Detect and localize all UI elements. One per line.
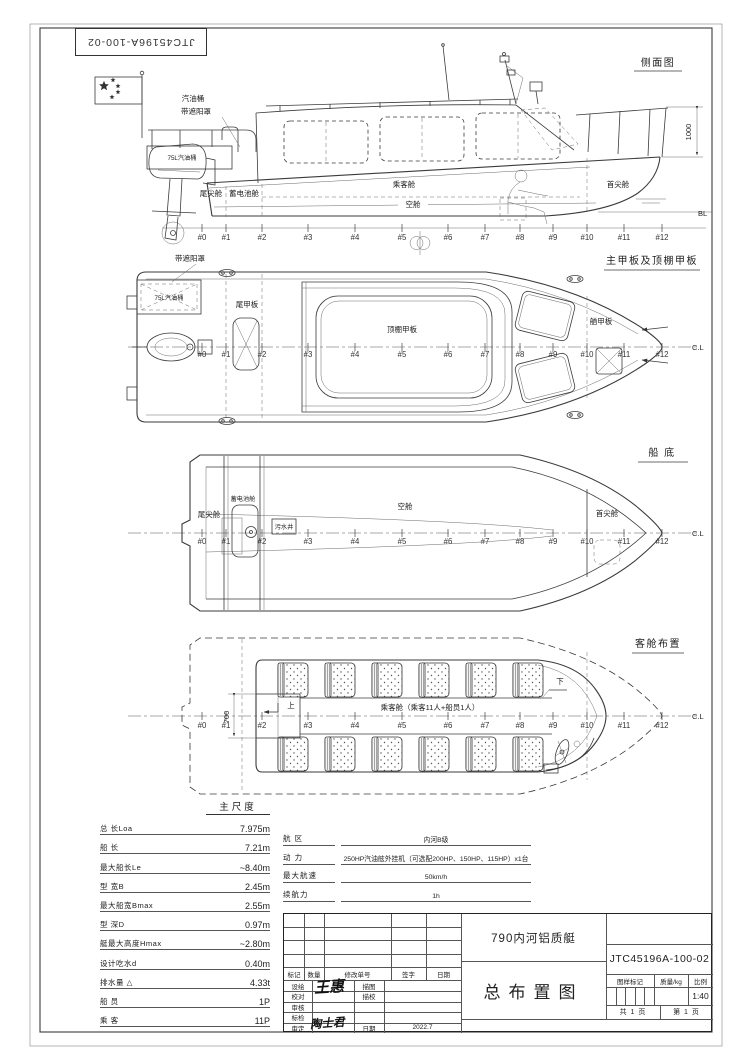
- pages-total: 共 1 页: [606, 1005, 660, 1019]
- station-label: #3: [304, 233, 313, 242]
- deck-fuel-tank-label: 75L汽油桶: [155, 294, 184, 302]
- doc-number-box: JTC45196A-100-02: [75, 28, 207, 56]
- station-label: #8: [516, 721, 525, 730]
- dimension-row: 最大船长Le~8.40m: [100, 854, 270, 873]
- date-label: 日期: [354, 1023, 384, 1034]
- station-label: #2: [258, 537, 267, 546]
- row-label: 船 员: [100, 996, 119, 1007]
- fuel-callout-label: 汽油桶: [182, 93, 205, 103]
- row-value: 50km/h: [341, 874, 531, 883]
- spec-row: 航 区内河B级: [283, 833, 531, 846]
- fuel-tank-75l-label: 75L汽油桶: [168, 154, 197, 162]
- signature-approver: 陶士君: [309, 1014, 345, 1032]
- side-station-row: #0#1#2#3#4#5#6#7#8#9#10#11#12: [198, 224, 669, 242]
- bottom-battery-label: 蓄电池舱: [231, 495, 257, 503]
- battery-label: 蓄电池舱: [229, 188, 259, 198]
- dimension-row: 型 宽B2.45m: [100, 874, 270, 893]
- station-label: #12: [655, 537, 668, 546]
- door-width-text: 700: [222, 711, 231, 724]
- passenger-cabin-label: 乘客舱: [393, 179, 416, 189]
- date-value: 2022.7: [384, 1023, 461, 1034]
- windshield-plan: [514, 290, 576, 404]
- row-value: 7.21m: [245, 843, 270, 853]
- cabin-view: 客舱布置 C.L #0#1#2#3#4#5#6#7#8#9#10#11#12 乘…: [128, 637, 704, 794]
- station-label: #5: [398, 721, 407, 730]
- station-label: #6: [444, 350, 453, 359]
- spec-row: 动 力250HP汽油舷外挂机（可选配200HP、150HP、115HP）x1台: [283, 852, 531, 865]
- deck-view-title: 主甲板及顶棚甲板: [606, 254, 698, 267]
- row-value: 1P: [259, 997, 270, 1007]
- cabin-station-row: #0#1#2#3#4#5#6#7#8#9#10#11#12: [198, 712, 669, 730]
- mast-and-lights: [442, 44, 542, 104]
- principal-dimensions-table: 总 长Loa7.975m船 长7.21m最大船长Le~8.40m型 宽B2.45…: [100, 816, 270, 1027]
- bottom-aft-peak-label: 尾尖舱: [198, 509, 221, 519]
- row-label: 最大船宽Bmax: [100, 900, 153, 911]
- bottom-view-title: 船 底: [648, 446, 675, 459]
- deck-centerline-label: C.L: [692, 343, 704, 352]
- row-label: 设计吃水d: [100, 958, 137, 969]
- flag-star-icon: [116, 83, 121, 88]
- scale-label: 比例: [688, 974, 713, 987]
- side-view-title: 侧面图: [641, 56, 676, 69]
- station-label: #2: [258, 721, 267, 730]
- mass-label: 质量/kg: [654, 974, 688, 987]
- flag-star-icon: [111, 77, 116, 82]
- roof-deck-label: 顶棚甲板: [387, 324, 417, 334]
- flag-star-icon: [110, 94, 115, 99]
- station-label: #10: [580, 233, 594, 242]
- flag: [95, 71, 144, 138]
- station-label: #1: [222, 537, 231, 546]
- station-label: #5: [398, 537, 407, 546]
- station-label: #0: [198, 350, 207, 359]
- row-value: 4.33t: [250, 978, 270, 988]
- height-dimension: 1000: [662, 107, 703, 157]
- role-design: 设绘: [284, 980, 312, 991]
- dimension-row: 设计吃水d0.40m: [100, 950, 270, 969]
- side-view: 侧面图 #0#1#2#3#4#5#6#7#8#9#10#11#12: [95, 44, 712, 255]
- station-label: #7: [481, 350, 490, 359]
- station-label: #3: [304, 350, 313, 359]
- fore-peak-label: 首尖舱: [607, 179, 630, 189]
- row-value: 2.55m: [245, 901, 270, 911]
- aft-peak-label: 尾尖舱: [200, 188, 223, 198]
- bottom-station-row: #0#1#2#3#4#5#6#7#8#9#10#11#12: [198, 529, 669, 546]
- void-label: 空舱: [406, 199, 421, 209]
- dimension-row: 艇最大高度Hmax~2.80m: [100, 931, 270, 950]
- seats-top-row: [278, 663, 543, 697]
- row-value: 0.97m: [245, 920, 270, 930]
- station-label: #2: [258, 233, 267, 242]
- fuel-tank-side: 75L汽油桶: [147, 146, 232, 169]
- drawing-title: 总布置图: [461, 961, 606, 1019]
- page-number: 第 1 页: [660, 1005, 713, 1019]
- rev-header-sign: 签字: [391, 967, 426, 980]
- bilge-well: 污水井: [272, 519, 296, 534]
- product-name: 790内河铝质艇: [461, 914, 606, 961]
- bottom-view: 船 底 C.L #0#1#2#3#4#5#6#7#8#9#10#11#12 蓄电…: [128, 446, 704, 611]
- spec-row: 续航力1h: [283, 889, 531, 902]
- forepeak-hatch-bottom: [594, 540, 620, 564]
- trace-draw: 描图: [354, 980, 384, 991]
- station-label: #10: [580, 721, 594, 730]
- station-label: #11: [618, 350, 630, 359]
- role-standard-check: 标检: [284, 1012, 312, 1023]
- row-value: 250HP汽油舷外挂机（可选配200HP、150HP、115HP）x1台: [341, 853, 531, 865]
- station-label: #12: [655, 721, 668, 730]
- seats-bottom-row: [278, 737, 543, 771]
- aft-deck-label: 尾甲板: [236, 299, 259, 309]
- passenger-note-label: 乘客舱（乘客11人+船员1人）: [381, 702, 480, 712]
- row-label: 最大船长Le: [100, 862, 141, 873]
- row-value: 1h: [341, 893, 531, 902]
- row-label: 续航力: [283, 889, 335, 902]
- station-label: #0: [198, 721, 207, 730]
- row-value: 2.45m: [245, 882, 270, 892]
- station-label: #7: [481, 721, 490, 730]
- station-label: #9: [549, 537, 558, 546]
- station-label: #6: [444, 233, 453, 242]
- row-label: 乘 客: [100, 1015, 119, 1026]
- bottom-centerline-label: C.L: [692, 529, 704, 538]
- row-value: 7.975m: [240, 824, 270, 834]
- signature-designer: 王惠: [313, 975, 344, 998]
- dimension-row: 总 长Loa7.975m: [100, 816, 270, 835]
- station-label: #8: [516, 233, 525, 242]
- drawing-sheet: 侧面图 #0#1#2#3#4#5#6#7#8#9#10#11#12: [0, 0, 750, 1060]
- bow-railing: [576, 108, 668, 157]
- dimension-row: 船 员1P: [100, 989, 270, 1008]
- row-label: 排水量 △: [100, 977, 133, 988]
- station-label: #4: [351, 721, 360, 730]
- doc-number-rotated: JTC45196A-100-02: [87, 36, 195, 48]
- bottom-void-label: 空舱: [398, 501, 413, 511]
- row-value: ~8.40m: [240, 863, 270, 873]
- station-label: #8: [516, 537, 525, 546]
- station-label: #4: [351, 350, 360, 359]
- down-label: 下: [556, 677, 564, 686]
- row-label: 动 力: [283, 852, 335, 865]
- row-label: 航 区: [283, 833, 335, 846]
- row-label: 艇最大高度Hmax: [100, 938, 162, 949]
- station-label: #3: [304, 721, 313, 730]
- spec-row: 最大航速50km/h: [283, 870, 531, 883]
- steering-console: [544, 738, 594, 773]
- battery-compartment-bottom: 蓄电池舱: [222, 495, 258, 557]
- row-label: 型 深D: [100, 919, 125, 930]
- dimension-row: 最大船宽Bmax2.55m: [100, 893, 270, 912]
- flag-star-icon: [99, 81, 109, 90]
- bilge-well-label: 污水井: [275, 523, 294, 531]
- deck-view: 主甲板及顶棚甲板 C.L #0#1#2#3#4#5#6#7#8#9#10#11#…: [127, 253, 704, 425]
- row-value: ~2.80m: [240, 939, 270, 949]
- station-label: #6: [444, 537, 453, 546]
- deck-sunshade-label: 带遮阳罩: [175, 253, 205, 263]
- row-value: 0.40m: [245, 959, 270, 969]
- station-label: #5: [398, 350, 407, 359]
- fore-deck-label: 艏甲板: [590, 316, 613, 326]
- midship-symbol: [410, 231, 430, 255]
- sunshade-callout-label: 带遮阳罩: [181, 106, 211, 116]
- station-label: #1: [222, 233, 231, 242]
- cabin-centerline-label: C.L: [692, 712, 704, 721]
- height-dim-text: 1000: [684, 124, 693, 141]
- station-label: #8: [516, 350, 525, 359]
- station-label: #6: [444, 721, 453, 730]
- station-label: #4: [351, 537, 360, 546]
- dimension-row: 船 长7.21m: [100, 835, 270, 854]
- station-label: #7: [481, 233, 490, 242]
- deck-station-row: #0#1#2#3#4#5#6#7#8#9#10#11#12: [198, 343, 669, 359]
- station-label: #10: [580, 350, 594, 359]
- station-label: #0: [198, 537, 207, 546]
- bottom-fore-peak-label: 首尖舱: [596, 508, 619, 518]
- cabin-view-title: 客舱布置: [635, 637, 681, 650]
- hull-profile: [207, 157, 712, 217]
- row-label: 最大航速: [283, 870, 335, 883]
- specs-table: 航 区内河B级动 力250HP汽油舷外挂机（可选配200HP、150HP、115…: [283, 833, 531, 907]
- principal-dimensions-title: 主尺度: [206, 799, 270, 815]
- flag-star-icon: [116, 89, 121, 94]
- row-label: 船 长: [100, 842, 119, 853]
- rev-header-date: 日期: [426, 967, 461, 980]
- baseline-label: BL: [698, 209, 707, 218]
- row-label: 型 宽B: [100, 881, 124, 892]
- drawing-number: JTC45196A-100-02: [606, 944, 713, 974]
- role-approve: 审定: [284, 1023, 312, 1034]
- trace-check: 描校: [354, 991, 384, 1002]
- station-label: #0: [198, 233, 207, 242]
- station-label: #4: [351, 233, 360, 242]
- up-label: 上: [287, 701, 295, 710]
- title-block: 标记 数量 修改单号 签字 日期 设绘 校对 审核 标检 审定 描图 描校 日期…: [283, 913, 712, 1032]
- row-value: 11P: [255, 1016, 270, 1026]
- role-review: 审核: [284, 1002, 312, 1013]
- row-label: 总 长Loa: [100, 823, 133, 834]
- dimension-row: 排水量 △4.33t: [100, 970, 270, 989]
- dimension-row: 型 深D0.97m: [100, 912, 270, 931]
- role-check: 校对: [284, 991, 312, 1002]
- dimension-row: 乘 客11P: [100, 1008, 270, 1027]
- down-marker: 下: [542, 677, 567, 698]
- station-label: #11: [618, 233, 630, 242]
- rev-header-mark: 标记: [284, 967, 304, 980]
- station-label: #9: [549, 721, 558, 730]
- station-label: #9: [549, 233, 558, 242]
- row-value: 内河B级: [341, 834, 531, 846]
- scale-value: 1:40: [688, 987, 713, 1005]
- station-label: #5: [398, 233, 407, 242]
- station-label: #11: [618, 721, 630, 730]
- station-label: #3: [304, 537, 313, 546]
- station-label: #12: [655, 233, 668, 242]
- stamp-label: 图样标记: [606, 974, 654, 987]
